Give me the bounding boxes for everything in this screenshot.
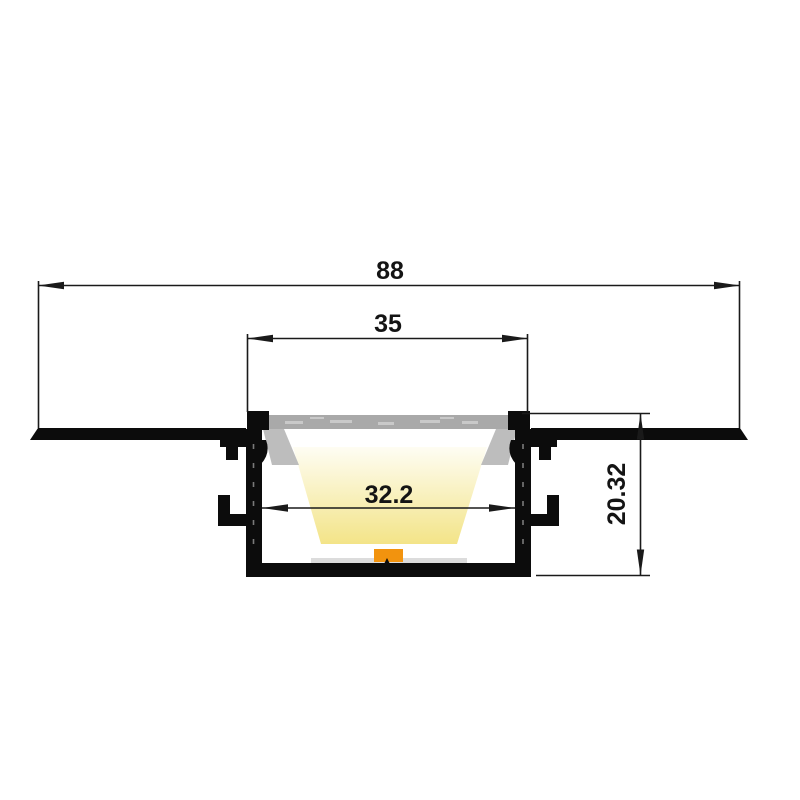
dim35-arrow-right — [502, 335, 528, 342]
dim-label-height: 20.32 — [603, 463, 631, 526]
hook-bottom-right-bar — [530, 514, 559, 526]
dim35-arrow-left — [247, 335, 273, 342]
led-chip — [374, 549, 403, 562]
hook-top-right-leg — [539, 447, 551, 460]
hook-bottom-left-finger — [218, 495, 230, 514]
hook-bottom-right-finger — [547, 495, 559, 514]
hook-top-left-bar — [220, 437, 247, 447]
dim32-arrow-right — [489, 504, 515, 511]
hook-bottom-left-bar — [218, 514, 247, 526]
dim-label-inner-width: 32.2 — [365, 481, 414, 509]
clip-top-left — [247, 411, 269, 430]
dim-label-overall-width: 88 — [376, 257, 404, 285]
dim20-arrow-bottom — [637, 550, 644, 576]
dim-label-opening-width: 35 — [374, 310, 402, 338]
profile-cross-section-drawing: 88 35 32.2 20.32 — [0, 0, 800, 800]
flange-left — [30, 428, 246, 440]
dim20-arrow-top — [637, 414, 644, 440]
dim32-arrow-left — [262, 504, 288, 511]
hook-top-right-bar — [530, 437, 557, 447]
dim88-arrow-right — [714, 282, 740, 289]
drawing-canvas: 88 35 32.2 20.32 — [0, 0, 800, 800]
hook-top-left-leg — [226, 447, 238, 460]
dim88-arrow-left — [38, 282, 64, 289]
